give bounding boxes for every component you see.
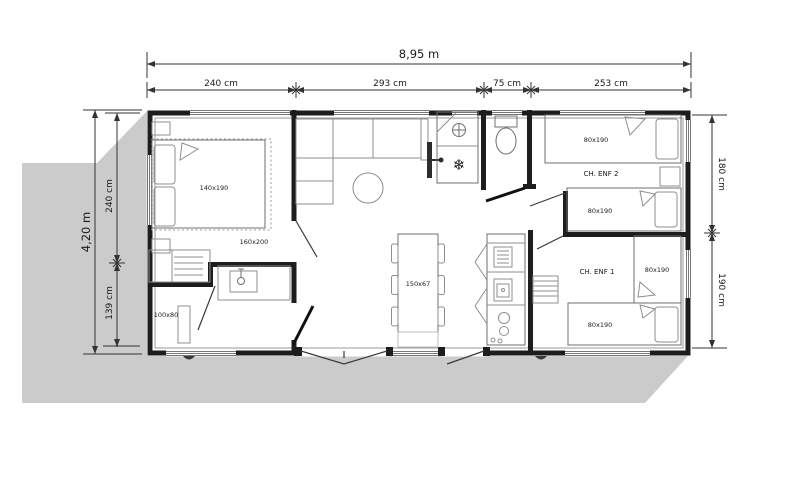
window-right-kids2 [686,120,692,162]
floor-plan-svg: 140x190 160x200 100x80 [0,0,796,480]
window-bottom-kids1 [565,351,650,357]
window-top-living [334,110,429,116]
dimension-top-overall: 8,95 m [147,47,691,78]
shower-label: 100x80 [154,311,179,319]
bed-label: 80x190 [584,136,609,144]
window-top-wc [492,110,522,116]
bed-label: 80x190 [645,266,670,274]
fridge-snowflake-icon: ❄ [453,156,466,174]
bed-label: 80x190 [588,321,613,329]
dining-table-label: 150x67 [406,280,431,288]
dimension-right-segments: 180 cm 190 cm [692,115,727,348]
seg-right-180-label: 180 cm [716,157,726,191]
room-name: CH. ENF 1 [580,268,615,276]
seg-left-240-label: 240 cm [105,179,115,213]
window-bottom-living [392,351,438,357]
window-top-bedroom [190,110,290,116]
seg-240-label: 240 cm [204,79,238,89]
bed-zone-label: 160x200 [240,238,269,246]
floor-plan-page: 140x190 160x200 100x80 [0,0,796,480]
bed-label: 80x190 [588,207,613,215]
room-name: CH. ENF 2 [584,170,619,178]
burner-icon [453,124,466,137]
seg-left-139-label: 139 cm [105,286,115,320]
seg-293-label: 293 cm [373,79,407,89]
seg-right-190-label: 190 cm [716,273,726,307]
dimension-top-segments: 240 cm 293 cm 75 cm 253 cm [147,79,691,98]
seg-253-label: 253 cm [594,79,628,89]
overall-width-label: 8,95 m [399,47,439,61]
window-right-kids1 [686,250,692,298]
seg-75-label: 75 cm [493,79,521,89]
double-bed-label: 140x190 [200,184,229,192]
window-bottom-bathroom [166,351,236,357]
overall-height-label: 4,20 m [79,212,93,252]
